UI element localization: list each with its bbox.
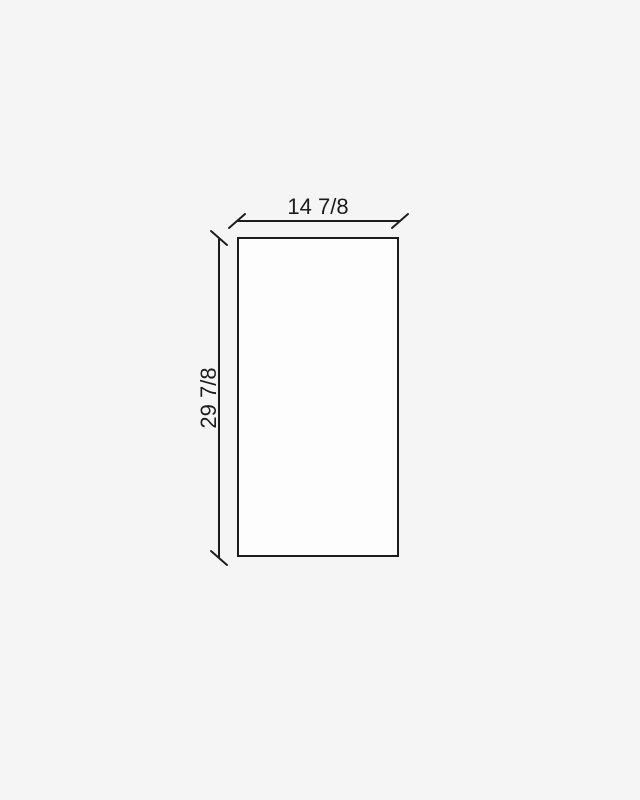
width-dimension: 14 7/8 (229, 194, 408, 228)
dimension-drawing: 14 7/8 29 7/8 (0, 0, 640, 800)
height-dimension-label: 29 7/8 (196, 367, 221, 428)
panel-rectangle (238, 238, 398, 556)
drawing-canvas: 14 7/8 29 7/8 (0, 0, 640, 800)
width-dimension-label: 14 7/8 (287, 194, 348, 219)
height-dimension: 29 7/8 (196, 231, 227, 565)
